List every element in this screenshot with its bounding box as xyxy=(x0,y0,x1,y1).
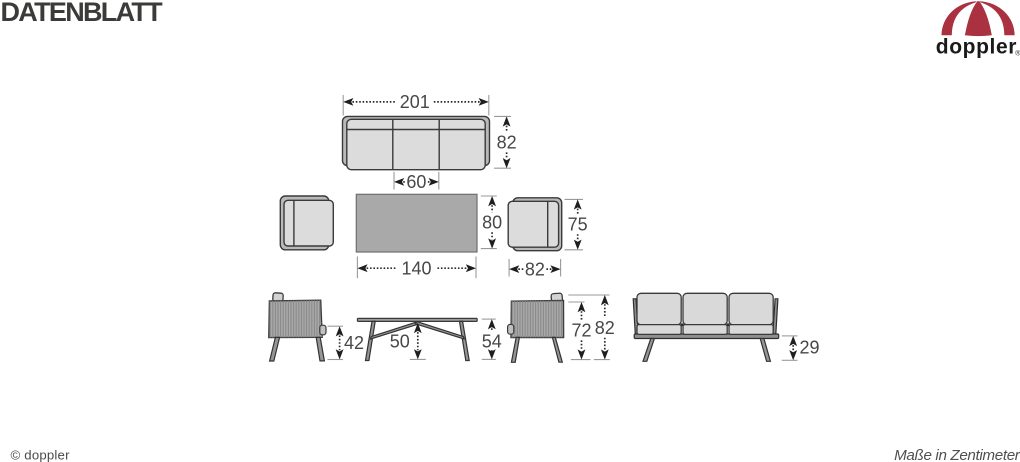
svg-text:82: 82 xyxy=(525,259,545,279)
svg-text:72: 72 xyxy=(571,321,591,341)
svg-text:®: ® xyxy=(1015,49,1020,57)
svg-text:60: 60 xyxy=(406,172,426,192)
svg-text:82: 82 xyxy=(497,133,517,153)
svg-text:50: 50 xyxy=(390,332,410,352)
svg-text:© doppler: © doppler xyxy=(11,448,71,462)
svg-text:54: 54 xyxy=(482,332,502,352)
svg-text:140: 140 xyxy=(401,258,431,278)
svg-text:75: 75 xyxy=(568,214,588,234)
svg-text:Maße in Zentimeter: Maße in Zentimeter xyxy=(894,447,1020,462)
svg-text:DATENBLATT: DATENBLATT xyxy=(1,0,164,27)
svg-text:82: 82 xyxy=(595,318,615,338)
svg-text:doppler: doppler xyxy=(936,36,1017,59)
svg-text:80: 80 xyxy=(482,213,502,233)
svg-text:29: 29 xyxy=(799,337,819,357)
svg-text:42: 42 xyxy=(344,333,364,353)
svg-text:201: 201 xyxy=(400,92,430,112)
